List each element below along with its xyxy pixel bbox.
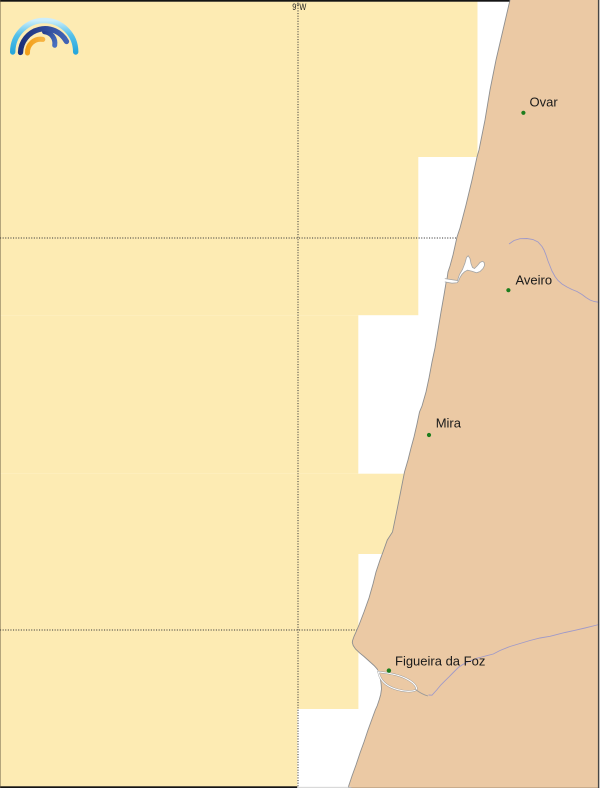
svg-text:Mira: Mira	[436, 416, 462, 431]
svg-text:9°W: 9°W	[292, 2, 306, 13]
svg-text:Ovar: Ovar	[530, 94, 559, 109]
svg-text:Aveiro: Aveiro	[516, 272, 553, 287]
svg-text:Figueira da Foz: Figueira da Foz	[395, 654, 485, 669]
